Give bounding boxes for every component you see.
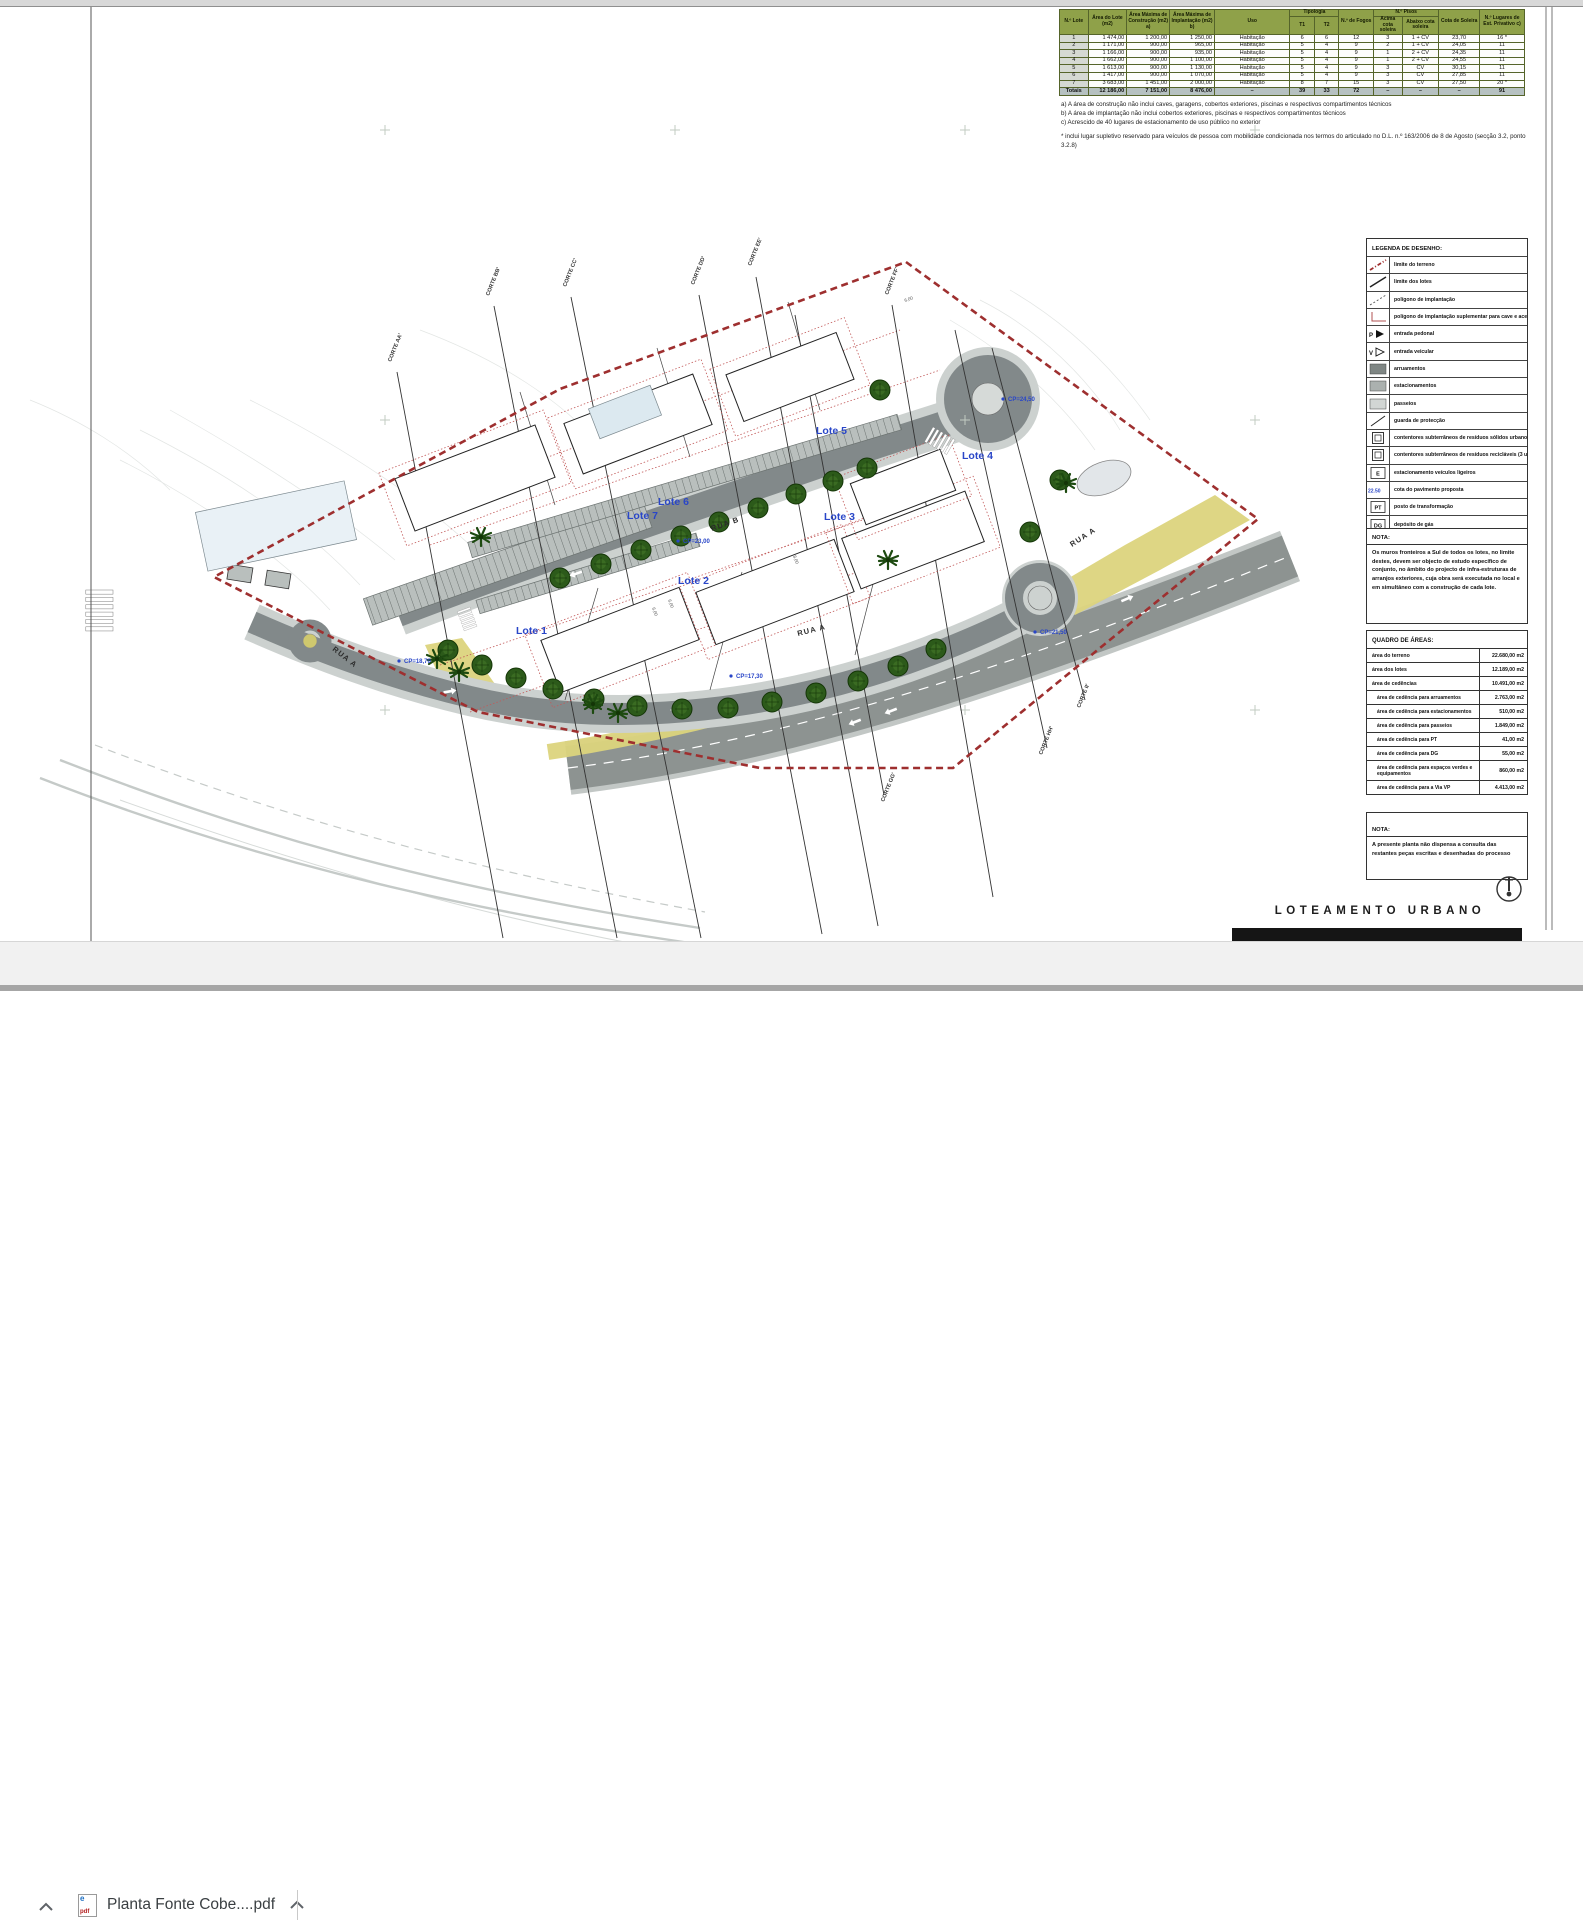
lot-label: Lote 6 [658, 496, 689, 508]
cell: 900,00 [1127, 65, 1170, 73]
cell: 7 [1314, 80, 1338, 88]
cell: 1 100,00 [1170, 57, 1215, 65]
cell: 1 [1060, 35, 1089, 43]
cell: 6 [1060, 72, 1089, 80]
cell: Habitação [1214, 80, 1289, 88]
areas-row-value: 10.491,00 m2 [1479, 677, 1527, 690]
grid-cross [380, 415, 390, 425]
tree-icon [718, 698, 738, 718]
pavement-level-label: CP=18,70 [404, 659, 432, 665]
table-row: 21 171,00900,00965,00Habitação54921 + CV… [1060, 42, 1525, 50]
tree-icon [631, 540, 651, 560]
cell: 3 [1060, 50, 1089, 58]
cell: 5 [1290, 57, 1314, 65]
cell: 1 [1374, 57, 1403, 65]
areas-row: área de cedência para DG55,00 m2 [1367, 746, 1527, 760]
title-block-bar [1232, 928, 1522, 941]
cell: 5 [1060, 65, 1089, 73]
cell: 9 [1339, 72, 1374, 80]
areas-row-label: área do terreno [1367, 649, 1479, 662]
areas-table: QUADRO DE ÁREAS: área do terreno22.680,0… [1366, 630, 1528, 795]
cell: CV [1402, 65, 1439, 73]
table-footnotes: a) A área de construção não inclui caves… [1061, 101, 1531, 151]
areas-row-label: área de cedência para DG [1367, 747, 1479, 760]
legend-item: Pentrada pedonal [1367, 325, 1527, 342]
areas-row-value: 22.680,00 m2 [1479, 649, 1527, 662]
pedestrian-arrow-icon: P [1367, 326, 1390, 342]
crosswalk-icon [86, 590, 113, 631]
lot-line-icon [1367, 274, 1390, 290]
cell: 15 [1339, 80, 1374, 88]
downloaded-file-chip[interactable]: e pdf Planta Fonte Cobe....pdf [78, 1889, 305, 1921]
swatch-mid-icon [1367, 378, 1390, 394]
cell: 2 [1060, 42, 1089, 50]
cell: 6 [1290, 35, 1314, 43]
swatch-light-icon [1367, 395, 1390, 411]
footnote-c: c) Acrescido de 40 lugares de estacionam… [1061, 119, 1261, 126]
section-label: CORTE AA' [387, 332, 404, 363]
cell: 30,15 [1439, 65, 1480, 73]
tree-icon [1020, 522, 1040, 542]
street-label: RUA A [796, 622, 827, 638]
pavement-level-label: CP=24,50 [1008, 397, 1036, 403]
tree-icon [786, 484, 806, 504]
col-header-tipologia: Tipologia [1290, 10, 1339, 17]
cell: 4 [1314, 65, 1338, 73]
areas-row-value: 510,00 m2 [1479, 705, 1527, 718]
vehicle-arrow-icon: V [1367, 343, 1390, 359]
cell: Habitação [1214, 72, 1289, 80]
chevron-up-icon [38, 1902, 54, 1911]
areas-row-label: área de cedência para estacionamentos [1367, 705, 1479, 718]
nota-box-2: NOTA: A presente planta não dispensa a c… [1366, 812, 1528, 880]
legend-item: limite dos lotes [1367, 273, 1527, 290]
cell: CV [1402, 72, 1439, 80]
svg-text:P: P [1369, 333, 1373, 339]
lot-label: Lote 1 [516, 625, 547, 637]
building-footprint [395, 425, 555, 531]
blue-level-icon: 22.50 [1367, 482, 1390, 498]
table-row: 11 474,001 200,001 250,00Habitação661231… [1060, 35, 1525, 43]
cell: 900,00 [1127, 72, 1170, 80]
sheet-title: LOTEAMENTO URBANO [1240, 905, 1520, 917]
footnote-asterisk: * inclui lugar supletivo reservado para … [1061, 133, 1531, 151]
cell: Habitação [1214, 65, 1289, 73]
cell: 12 186,00 [1088, 88, 1127, 96]
cell: 24,35 [1439, 50, 1480, 58]
building-footprint [696, 539, 854, 644]
section-label: CORTE FF' [884, 266, 901, 296]
cell: 16 * [1480, 35, 1525, 43]
pavement-level-label: CP=17,30 [736, 674, 764, 680]
legend-item: polígono de implantação suplementar para… [1367, 308, 1527, 325]
cell: 4 [1314, 57, 1338, 65]
implantation-supplementary-icon [1367, 309, 1390, 325]
legend-item: contentores subterrâneos de resíduos rec… [1367, 446, 1527, 463]
container-box-icon [1367, 447, 1390, 463]
cell: 5 [1290, 42, 1314, 50]
tree-icon [472, 655, 492, 675]
cell: 27,50 [1439, 80, 1480, 88]
legend-item: polígono de implantação [1367, 291, 1527, 308]
cell: 4 [1060, 57, 1089, 65]
legend-panel: LEGENDA DE DESENHO: limite do terrenolim… [1366, 238, 1528, 534]
lot-label: Lote 2 [678, 575, 709, 587]
cell: 9 [1339, 57, 1374, 65]
areas-row: área de cedência para espaços verdes e e… [1367, 760, 1527, 780]
cell: 3 [1374, 80, 1403, 88]
areas-row-value: 41,00 m2 [1479, 733, 1527, 746]
cell: 1 451,00 [1127, 80, 1170, 88]
svg-text:V: V [1369, 351, 1373, 357]
cell: 3 [1374, 65, 1403, 73]
pavement-level-label: CP=21,50 [1040, 630, 1068, 636]
col-header-fogos: N.º de Fogos [1339, 10, 1374, 35]
cell: 24,55 [1439, 57, 1480, 65]
svg-text:E: E [1376, 471, 1380, 477]
cell: Habitação [1214, 35, 1289, 43]
cell: 2 [1374, 42, 1403, 50]
areas-row: área de cedência para PT41,00 m2 [1367, 732, 1527, 746]
legend-item: passeios [1367, 394, 1527, 411]
nota1-title: NOTA: [1367, 529, 1527, 544]
legend-item-label: estacionamentos [1390, 383, 1436, 389]
tree-icon [762, 692, 782, 712]
nota2-title: NOTA: [1367, 813, 1527, 836]
areas-row: área de cedência para a Via VP4.413,00 m… [1367, 780, 1527, 794]
areas-row-value: 2.763,00 m2 [1479, 691, 1527, 704]
cell: 5 [1290, 72, 1314, 80]
areas-row-label: área de cedência para PT [1367, 733, 1479, 746]
areas-row-value: 4.413,00 m2 [1479, 781, 1527, 794]
cell: 1 662,00 [1088, 57, 1127, 65]
areas-row-value: 12.189,00 m2 [1479, 663, 1527, 676]
level-point-icon [397, 659, 400, 662]
section-label: CORTE HH' [1038, 725, 1055, 756]
building-footprint [726, 333, 854, 422]
cell: 12 [1339, 35, 1374, 43]
downloaded-file-name: Planta Fonte Cobe....pdf [107, 1896, 275, 1914]
col-header-area-construcao: Área Máxima de Construção (m2) a) [1127, 10, 1170, 35]
cell: 5 [1290, 65, 1314, 73]
section-label: CORTE II' [1076, 683, 1091, 709]
nota1-body: Os muros fronteiros a Sul de todos os lo… [1367, 544, 1527, 597]
table-row: 41 662,00900,001 100,00Habitação54912 + … [1060, 57, 1525, 65]
legend-item-label: entrada veicular [1390, 349, 1434, 355]
footnote-a: a) A área de construção não inclui caves… [1061, 101, 1392, 108]
nota2-body: A presente planta não dispensa a consult… [1367, 836, 1527, 863]
cell: 33 [1314, 88, 1338, 96]
cell: 3 [1374, 72, 1403, 80]
level-point-icon [676, 539, 679, 542]
tree-icon [823, 471, 843, 491]
cell: Habitação [1214, 42, 1289, 50]
areas-row-label: área de cedência para espaços verdes e e… [1367, 761, 1479, 780]
cell: 1 250,00 [1170, 35, 1215, 43]
cell: Habitação [1214, 57, 1289, 65]
tree-icon [591, 554, 611, 574]
cell: 1 130,00 [1170, 65, 1215, 73]
areas-row: área do terreno22.680,00 m2 [1367, 648, 1527, 662]
legend-item: Ventrada veicular [1367, 342, 1527, 359]
legend-item-label: contentores subterrâneos de resíduos sól… [1390, 435, 1527, 441]
section-label: CORTE DD' [690, 255, 707, 286]
hide-download-bar-button[interactable] [28, 1895, 64, 1917]
legend-item-label: estacionamento veículos ligeiros [1390, 470, 1476, 476]
container-box-icon [1367, 430, 1390, 446]
legend-item: limite do terreno [1367, 256, 1527, 273]
download-bar: e pdf Planta Fonte Cobe....pdf [0, 941, 1583, 986]
tree-icon [857, 458, 877, 478]
cell: 11 [1480, 72, 1525, 80]
areas-row-label: área de cedência para a Via VP [1367, 781, 1479, 794]
col-header-lugares: N.º Lugares de Est. Privativo c) [1480, 10, 1525, 35]
cell: 91 [1480, 88, 1525, 96]
cell: 1 171,00 [1088, 42, 1127, 50]
window-top-edge [0, 0, 1583, 7]
cell: – [1214, 88, 1289, 96]
level-point-icon [1033, 630, 1036, 633]
legend-title: LEGENDA DE DESENHO: [1367, 239, 1527, 256]
grid-cross [960, 125, 970, 135]
section-label: CORTE EE' [747, 237, 764, 267]
cell: 8 [1290, 80, 1314, 88]
window-bottom-edge [0, 985, 1583, 991]
cell: 11 [1480, 65, 1525, 73]
legend-item: Eestacionamento veículos ligeiros [1367, 464, 1527, 481]
areas-row: área de cedência para estacionamentos510… [1367, 704, 1527, 718]
cell: 3 [1374, 35, 1403, 43]
cell: 1 474,00 [1088, 35, 1127, 43]
legend-item-label: entrada pedonal [1390, 331, 1434, 337]
cell: 1 200,00 [1127, 35, 1170, 43]
section-label: CORTE CC' [562, 257, 579, 288]
cell: 965,00 [1170, 42, 1215, 50]
street-label: RUA A [1068, 525, 1097, 548]
lot-parameters-table: N.º Lote Área do Lote (m2) Área Máxima d… [1059, 9, 1525, 96]
cell: 1 070,00 [1170, 72, 1215, 80]
letter-box-icon: E [1367, 465, 1390, 481]
svg-text:PT: PT [1374, 506, 1382, 512]
col-header-area-implantacao: Área Máxima de Implantação (m2) b) [1170, 10, 1215, 35]
pavement-level-label: CP=23,00 [683, 539, 711, 545]
legend-item-label: passeios [1390, 401, 1416, 407]
areas-row-label: área de cedência para arruamentos [1367, 691, 1479, 704]
cell: 9 [1339, 42, 1374, 50]
cell: 11 [1480, 57, 1525, 65]
tree-icon [848, 671, 868, 691]
cell: 1 + CV [1402, 42, 1439, 50]
pdf-icon-letter: e [80, 1895, 84, 1903]
col-header-t2: T2 [1314, 16, 1338, 34]
cell: 20 * [1480, 80, 1525, 88]
areas-row-label: área dos lotes [1367, 663, 1479, 676]
tree-icon [506, 668, 526, 688]
grid-cross [670, 125, 680, 135]
areas-row: área de cedências10.491,00 m2 [1367, 676, 1527, 690]
north-arrow-icon [1494, 874, 1524, 904]
tree-icon [543, 679, 563, 699]
cell: 5 [1290, 50, 1314, 58]
col-header-abaixo: Abaixo cota soleira [1402, 16, 1439, 34]
cell: 900,00 [1127, 50, 1170, 58]
grid-cross [380, 705, 390, 715]
cell: 4 [1314, 72, 1338, 80]
cell: 39 [1290, 88, 1314, 96]
areas-row-label: área de cedência para passeios [1367, 719, 1479, 732]
tree-icon [806, 683, 826, 703]
cell: 1 [1374, 50, 1403, 58]
legend-item-label: posto de transformação [1390, 504, 1453, 510]
swatch-dark-icon [1367, 361, 1390, 377]
cell: 72 [1339, 88, 1374, 96]
legend-item: estacionamentos [1367, 377, 1527, 394]
table-row: 73 683,001 451,002 000,00Habitação87153C… [1060, 80, 1525, 88]
pdf-icon-label: pdf [80, 1909, 89, 1915]
implantation-dashed-icon [1367, 292, 1390, 308]
cell: 8 476,00 [1170, 88, 1215, 96]
section-label: CORTE BB' [485, 266, 502, 297]
cell: – [1374, 88, 1403, 96]
cell: 1 417,00 [1088, 72, 1127, 80]
cell: 4 [1314, 50, 1338, 58]
lot-label: Lote 7 [627, 510, 658, 522]
areas-row-value: 860,00 m2 [1479, 761, 1527, 780]
letter-box-icon: PT [1367, 499, 1390, 515]
tree-icon [888, 656, 908, 676]
col-header-acima: Acima cota soleira [1374, 16, 1403, 34]
cell: 9 [1339, 65, 1374, 73]
legend-item-label: limite dos lotes [1390, 279, 1432, 285]
tree-icon [748, 498, 768, 518]
dimension-label: 6,00 [904, 295, 914, 303]
cell: 27,85 [1439, 72, 1480, 80]
cell: 1 166,00 [1088, 50, 1127, 58]
areas-row-label: área de cedências [1367, 677, 1479, 690]
cell: – [1402, 88, 1439, 96]
nota-box-1: NOTA: Os muros fronteiros a Sul de todos… [1366, 528, 1528, 624]
legend-item-label: arruamentos [1390, 366, 1425, 372]
svg-text:22.50: 22.50 [1368, 489, 1381, 495]
table-row: 51 613,00900,001 130,00Habitação5493CV30… [1060, 65, 1525, 73]
col-header-lote: N.º Lote [1060, 10, 1089, 35]
grid-cross [1250, 415, 1260, 425]
cell: CV [1402, 80, 1439, 88]
lot-label: Lote 4 [962, 450, 993, 462]
cell: 9 [1339, 50, 1374, 58]
cell: Habitação [1214, 50, 1289, 58]
legend-item: 22.50cota do pavimento proposta [1367, 481, 1527, 498]
tree-icon [627, 696, 647, 716]
cell: 1 + CV [1402, 35, 1439, 43]
legend-item-label: contentores subterrâneos de resíduos rec… [1390, 452, 1527, 458]
cell: 935,00 [1170, 50, 1215, 58]
legend-item: contentores subterrâneos de resíduos sól… [1367, 429, 1527, 446]
col-header-area-lote: Área do Lote (m2) [1088, 10, 1127, 35]
cell: 900,00 [1127, 57, 1170, 65]
table-row: 31 166,00900,00935,00Habitação54912 + CV… [1060, 50, 1525, 58]
tree-icon [672, 699, 692, 719]
cell: 24,05 [1439, 42, 1480, 50]
grid-cross [1250, 705, 1260, 715]
cell: 11 [1480, 50, 1525, 58]
level-point-icon [1001, 397, 1004, 400]
areas-row: área dos lotes12.189,00 m2 [1367, 662, 1527, 676]
download-bar-divider [297, 1890, 298, 1920]
cell: – [1439, 88, 1480, 96]
cell: 2 000,00 [1170, 80, 1215, 88]
cell: 900,00 [1127, 42, 1170, 50]
cell: 2 + CV [1402, 50, 1439, 58]
tree-icon [870, 380, 890, 400]
legend-item-label: polígono de implantação [1390, 297, 1455, 303]
legend-item-label: limite do terreno [1390, 262, 1435, 268]
boundary-dashdot-icon [1367, 257, 1390, 273]
lot-label: Lote 5 [816, 425, 847, 437]
cell: 7 151,00 [1127, 88, 1170, 96]
legend-item-label: depósito de gás [1390, 522, 1434, 528]
areas-row: área de cedência para arruamentos2.763,0… [1367, 690, 1527, 704]
cell: 7 [1060, 80, 1089, 88]
guard-line-icon [1367, 413, 1390, 429]
areas-title: QUADRO DE ÁREAS: [1367, 631, 1527, 648]
pdf-file-icon: e pdf [78, 1894, 97, 1917]
areas-row: área de cedência para passeios1.849,00 m… [1367, 718, 1527, 732]
cell: 3 683,00 [1088, 80, 1127, 88]
legend-item: PTposto de transformação [1367, 498, 1527, 515]
tree-icon [550, 568, 570, 588]
cell: 6 [1314, 35, 1338, 43]
legend-item-label: polígono de implantação suplementar para… [1390, 314, 1527, 320]
totals-row: Totais12 186,007 151,008 476,00–393372––… [1060, 88, 1525, 96]
footnote-b: b) A área de implantação não inclui cobe… [1061, 110, 1346, 117]
level-point-icon [729, 674, 732, 677]
table-row: 61 417,00900,001 070,00Habitação5493CV27… [1060, 72, 1525, 80]
areas-row-value: 1.849,00 m2 [1479, 719, 1527, 732]
cell: 23,70 [1439, 35, 1480, 43]
col-header-uso: Uso [1214, 10, 1289, 35]
cell: Totais [1060, 88, 1089, 96]
cell: 2 + CV [1402, 57, 1439, 65]
legend-item-label: guarda de protecção [1390, 418, 1445, 424]
lot-label: Lote 3 [824, 511, 855, 523]
traffic-arrow-icon [923, 571, 938, 582]
traffic-arrow-icon [576, 585, 591, 596]
col-header-t1: T1 [1290, 16, 1314, 34]
cell: 11 [1480, 42, 1525, 50]
legend-item: guarda de protecção [1367, 412, 1527, 429]
legend-item-label: cota do pavimento proposta [1390, 487, 1463, 493]
cell: 4 [1314, 42, 1338, 50]
col-header-cota: Cota de Soleira [1439, 10, 1480, 35]
legend-item: arruamentos [1367, 360, 1527, 377]
cell: 1 613,00 [1088, 65, 1127, 73]
tree-icon [926, 639, 946, 659]
grid-cross [380, 125, 390, 135]
areas-row-value: 55,00 m2 [1479, 747, 1527, 760]
